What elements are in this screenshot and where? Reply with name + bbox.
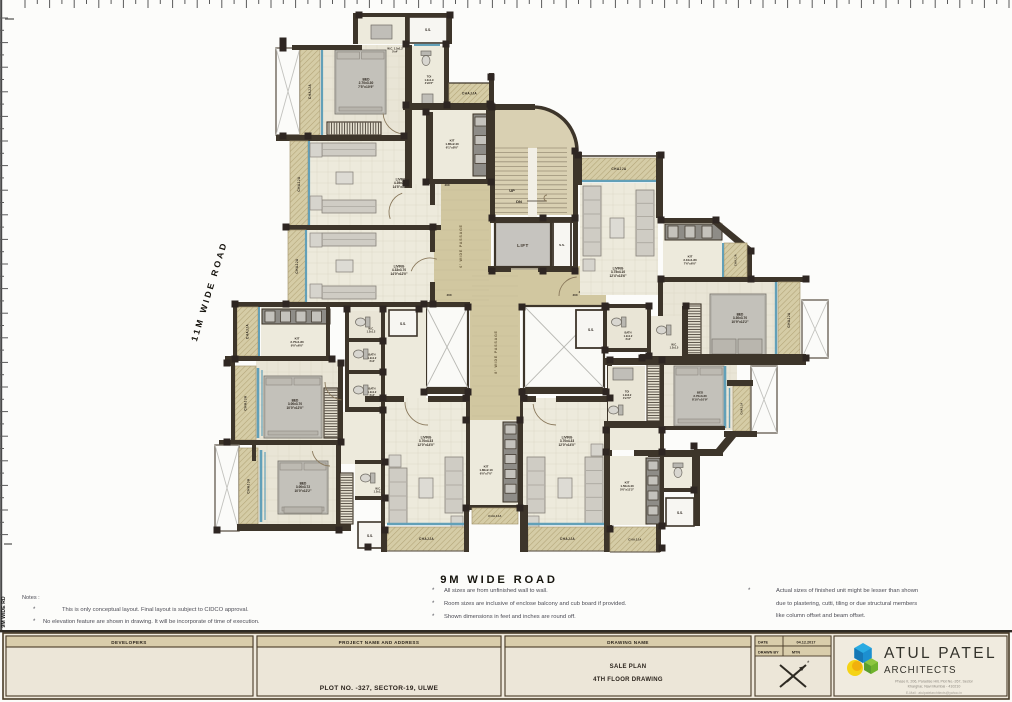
- svg-text:4'x4': 4'x4': [625, 337, 631, 341]
- svg-text:like column offset and beam of: like column offset and beam offset.: [776, 613, 866, 619]
- svg-text:4'x4': 4'x4': [369, 359, 375, 363]
- svg-text:Actual sizes of finished unit: Actual sizes of finished unit might be l…: [776, 588, 918, 594]
- svg-text:CHAJJA: CHAJJA: [246, 324, 250, 339]
- svg-text:ATUL PATEL: ATUL PATEL: [884, 645, 997, 662]
- svg-text:CHAJJA: CHAJJA: [297, 176, 301, 191]
- svg-text:DATE: DATE: [758, 640, 769, 644]
- svg-text:LIFT: LIFT: [517, 243, 529, 248]
- svg-text:CHAJJA: CHAJJA: [611, 167, 626, 171]
- svg-text:8'10"x10'9": 8'10"x10'9": [692, 398, 709, 402]
- svg-text:CHAJJA: CHAJJA: [560, 537, 575, 541]
- svg-text:DRAWING NAME: DRAWING NAME: [607, 640, 649, 645]
- svg-text:This is only conceptual layout: This is only conceptual layout. Final la…: [62, 607, 249, 613]
- svg-text:due to plastering, cutti, tili: due to plastering, cutti, tiling or due …: [776, 601, 917, 607]
- svg-text:PLOT NO. -327, SECTOR-19, ULWE: PLOT NO. -327, SECTOR-19, ULWE: [320, 685, 439, 692]
- svg-text:CHAJJA: CHAJJA: [740, 403, 743, 415]
- svg-text:DN: DN: [516, 199, 522, 204]
- svg-text:DRAWN BY: DRAWN BY: [758, 650, 779, 654]
- svg-text:No elevation feature are shown: No elevation feature are shown in drawin…: [43, 619, 260, 625]
- svg-text:E-Mail : atulpatelarchitects@y: E-Mail : atulpatelarchitects@yahoo.in: [906, 691, 962, 695]
- svg-text:CHAJJA: CHAJJA: [787, 312, 791, 327]
- svg-text:12'0"x14'0": 12'0"x14'0": [559, 443, 576, 447]
- svg-text:CHAJJA: CHAJJA: [462, 92, 477, 96]
- svg-text:04.12.2017: 04.12.2017: [796, 640, 815, 644]
- svg-text:12'0"x14'0": 12'0"x14'0": [418, 443, 435, 447]
- svg-text:S.S.: S.S.: [677, 511, 683, 515]
- svg-text:DEVELOPERS: DEVELOPERS: [111, 640, 146, 645]
- svg-text:4'x7'2": 4'x7'2": [623, 396, 632, 400]
- svg-text:ARCHITECTS: ARCHITECTS: [884, 665, 957, 676]
- svg-text:UP: UP: [509, 188, 515, 193]
- svg-text:5'0"x11'2": 5'0"x11'2": [620, 488, 635, 492]
- svg-text:CHAJJA: CHAJJA: [734, 254, 737, 266]
- svg-text:MTN: MTN: [792, 650, 800, 654]
- svg-text:CHAJJA: CHAJJA: [244, 395, 248, 410]
- svg-text:400: 400: [446, 293, 451, 297]
- svg-text:9'0"x6'0": 9'0"x6'0": [291, 344, 304, 348]
- svg-text:1.2x1.5: 1.2x1.5: [670, 346, 679, 350]
- svg-text:Phase II, 206, Paradise Hill,: Phase II, 206, Paradise Hill, Plot No.-2…: [895, 680, 974, 684]
- svg-text:CHAJJA: CHAJJA: [419, 537, 434, 541]
- svg-text:PROJECT NAME AND ADDRESS: PROJECT NAME AND ADDRESS: [339, 640, 420, 645]
- svg-text:10'0"x12'2": 10'0"x12'2": [295, 489, 312, 493]
- svg-text:4'x6'3": 4'x6'3": [425, 81, 434, 85]
- svg-text:CHAJJA: CHAJJA: [628, 537, 642, 541]
- svg-text:8' WIDE PASSAGE: 8' WIDE PASSAGE: [494, 330, 498, 374]
- svg-text:CHAJJA: CHAJJA: [488, 514, 502, 518]
- svg-text:7'6"x6'0": 7'6"x6'0": [684, 262, 697, 266]
- svg-text:6' WIDE PASSAGE: 6' WIDE PASSAGE: [459, 224, 463, 268]
- svg-text:6'0"x7'0": 6'0"x7'0": [480, 472, 493, 476]
- svg-text:10'0"x12'0": 10'0"x12'0": [287, 406, 304, 410]
- svg-text:10'9"x12'2": 10'9"x12'2": [732, 320, 749, 324]
- svg-text:4TH FLOOR DRAWING: 4TH FLOOR DRAWING: [593, 677, 663, 683]
- svg-text:Notes :: Notes :: [22, 595, 40, 601]
- svg-text:1.2x1.2: 1.2x1.2: [367, 330, 376, 334]
- svg-text:SALE PLAN: SALE PLAN: [610, 664, 647, 670]
- svg-text:Kharghar, Navi Mumbai - 410210: Kharghar, Navi Mumbai - 410210: [908, 685, 961, 689]
- svg-text:CHAJJA: CHAJJA: [295, 258, 299, 273]
- svg-text:9M WIDE RD: 9M WIDE RD: [1, 596, 7, 627]
- svg-text:6'1"x8'0": 6'1"x8'0": [446, 146, 459, 150]
- svg-text:S.S.: S.S.: [588, 328, 594, 332]
- svg-text:S.S.: S.S.: [400, 322, 406, 326]
- svg-text:400: 400: [572, 293, 577, 297]
- svg-text:All sizes are from unfinished: All sizes are from unfinished wall to wa…: [444, 588, 548, 594]
- svg-text:14'0"x12'0": 14'0"x12'0": [391, 272, 408, 276]
- svg-text:CHAJJA: CHAJJA: [247, 478, 251, 493]
- svg-text:S.S.: S.S.: [367, 534, 373, 538]
- svg-text:Shown dimensions in feet and i: Shown dimensions in feet and inches are …: [444, 614, 576, 620]
- svg-text:7'5"x10'9": 7'5"x10'9": [358, 85, 374, 89]
- svg-text:12'4"x13'6": 12'4"x13'6": [610, 274, 627, 278]
- svg-text:9M WIDE ROAD: 9M WIDE ROAD: [440, 574, 558, 586]
- svg-text:S.S.: S.S.: [425, 28, 431, 32]
- svg-text:CHAJJA: CHAJJA: [308, 84, 312, 99]
- svg-text:5'x4': 5'x4': [392, 50, 398, 54]
- svg-text:Room sizes are inclusive of en: Room sizes are inclusive of enclose balc…: [444, 601, 627, 607]
- svg-text:S.S.: S.S.: [559, 243, 565, 247]
